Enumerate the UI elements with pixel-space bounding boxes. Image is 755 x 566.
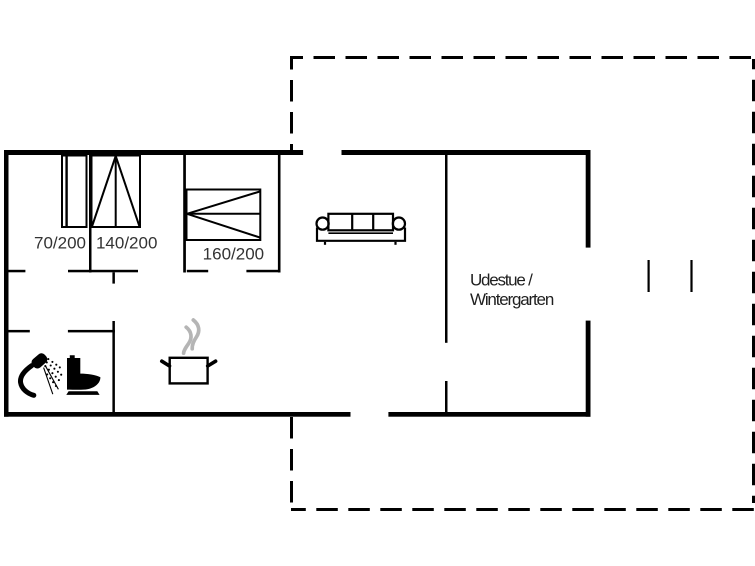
svg-text:Wintergarten: Wintergarten	[470, 290, 554, 309]
svg-text:160/200: 160/200	[203, 245, 264, 264]
svg-text:140/200: 140/200	[96, 234, 157, 253]
svg-text:70/200: 70/200	[34, 234, 86, 253]
svg-text:Udestue /: Udestue /	[470, 270, 533, 289]
